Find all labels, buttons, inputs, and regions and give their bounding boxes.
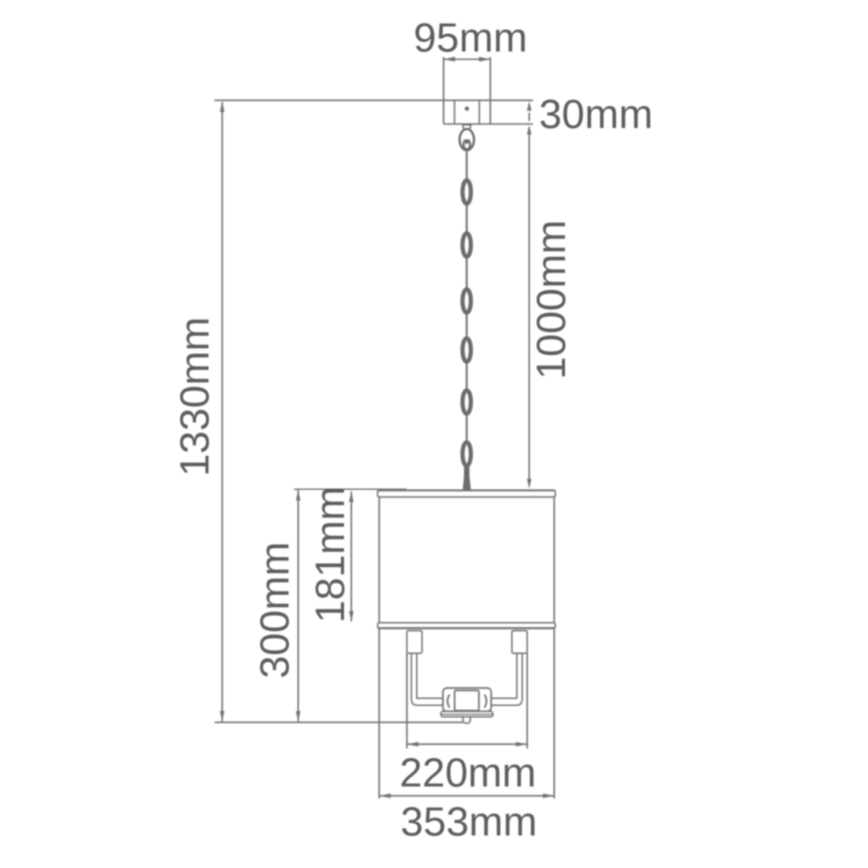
svg-text:181mm: 181mm xyxy=(307,486,353,623)
svg-text:95mm: 95mm xyxy=(414,15,528,61)
svg-text:30mm: 30mm xyxy=(539,91,653,137)
svg-text:1330mm: 1330mm xyxy=(172,317,218,477)
svg-text:353mm: 353mm xyxy=(401,799,538,845)
svg-text:300mm: 300mm xyxy=(252,542,298,679)
svg-text:220mm: 220mm xyxy=(400,750,537,796)
svg-text:1000mm: 1000mm xyxy=(528,220,574,380)
